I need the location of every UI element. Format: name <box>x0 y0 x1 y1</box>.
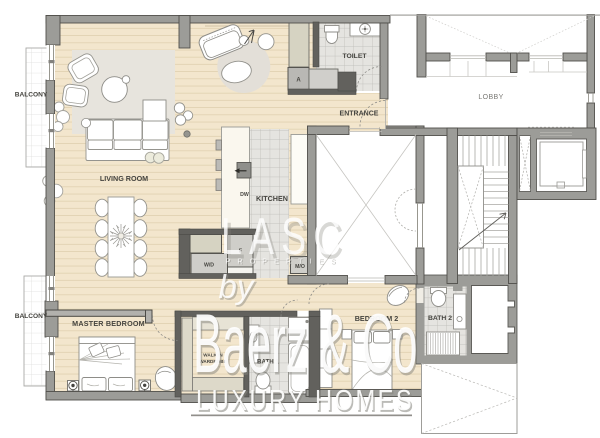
svg-text:PROPERTIES: PROPERTIES <box>226 259 343 266</box>
svg-text:LASC: LASC <box>221 207 348 266</box>
svg-text:DW: DW <box>240 192 249 198</box>
svg-text:KITCHEN: KITCHEN <box>256 194 288 203</box>
svg-text:MASTER BEDROOM: MASTER BEDROOM <box>72 319 145 328</box>
svg-text:A: A <box>296 78 301 84</box>
svg-text:W/D: W/D <box>204 263 214 269</box>
svg-text:LOBBY: LOBBY <box>478 94 503 101</box>
svg-text:BATH 2: BATH 2 <box>428 315 452 322</box>
svg-text:BALCONY: BALCONY <box>15 313 48 320</box>
svg-text:BALCONY: BALCONY <box>15 92 48 99</box>
svg-text:TOILET: TOILET <box>342 53 367 60</box>
svg-text:Baerz & Co: Baerz & Co <box>193 297 418 391</box>
svg-text:LUXURY HOMES: LUXURY HOMES <box>196 384 414 417</box>
svg-text:ENTRANCE: ENTRANCE <box>340 111 379 118</box>
svg-text:LIVING ROOM: LIVING ROOM <box>100 174 148 183</box>
